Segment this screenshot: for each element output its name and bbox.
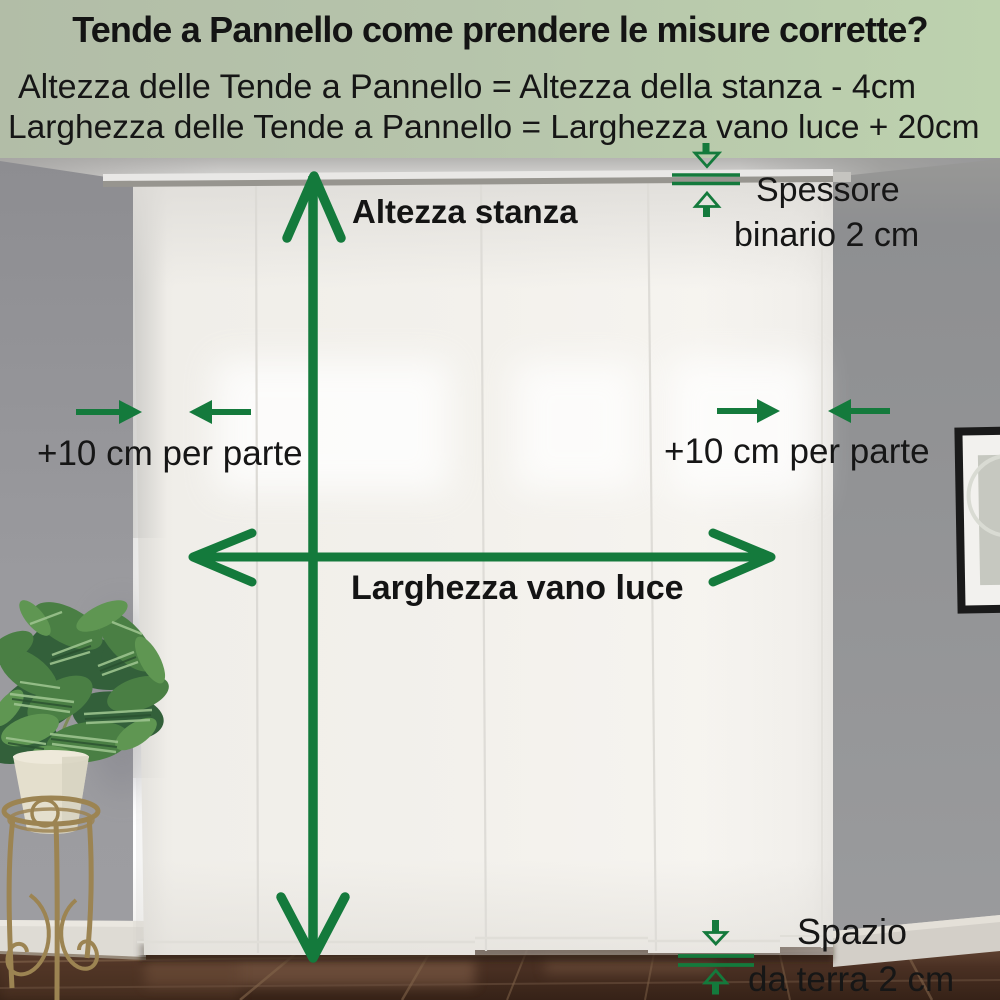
svg-text:Tende a Pannello come prendere: Tende a Pannello come prendere le misure… [72,9,928,50]
svg-text:binario 2 cm: binario 2 cm [734,216,919,254]
svg-text:Altezza delle Tende a Pannello: Altezza delle Tende a Pannello = Altezza… [18,68,916,106]
svg-text:+10 cm per parte: +10 cm per parte [37,434,303,473]
svg-text:Spessore: Spessore [756,171,900,209]
svg-text:da terra 2 cm: da terra 2 cm [748,960,954,999]
svg-text:Altezza stanza: Altezza stanza [352,193,578,230]
svg-text:Larghezza vano luce: Larghezza vano luce [351,569,684,607]
svg-text:Larghezza delle Tende a Pannel: Larghezza delle Tende a Pannello = Largh… [8,109,980,146]
svg-text:+10 cm per parte: +10 cm per parte [664,432,930,471]
svg-text:Spazio: Spazio [797,911,907,952]
